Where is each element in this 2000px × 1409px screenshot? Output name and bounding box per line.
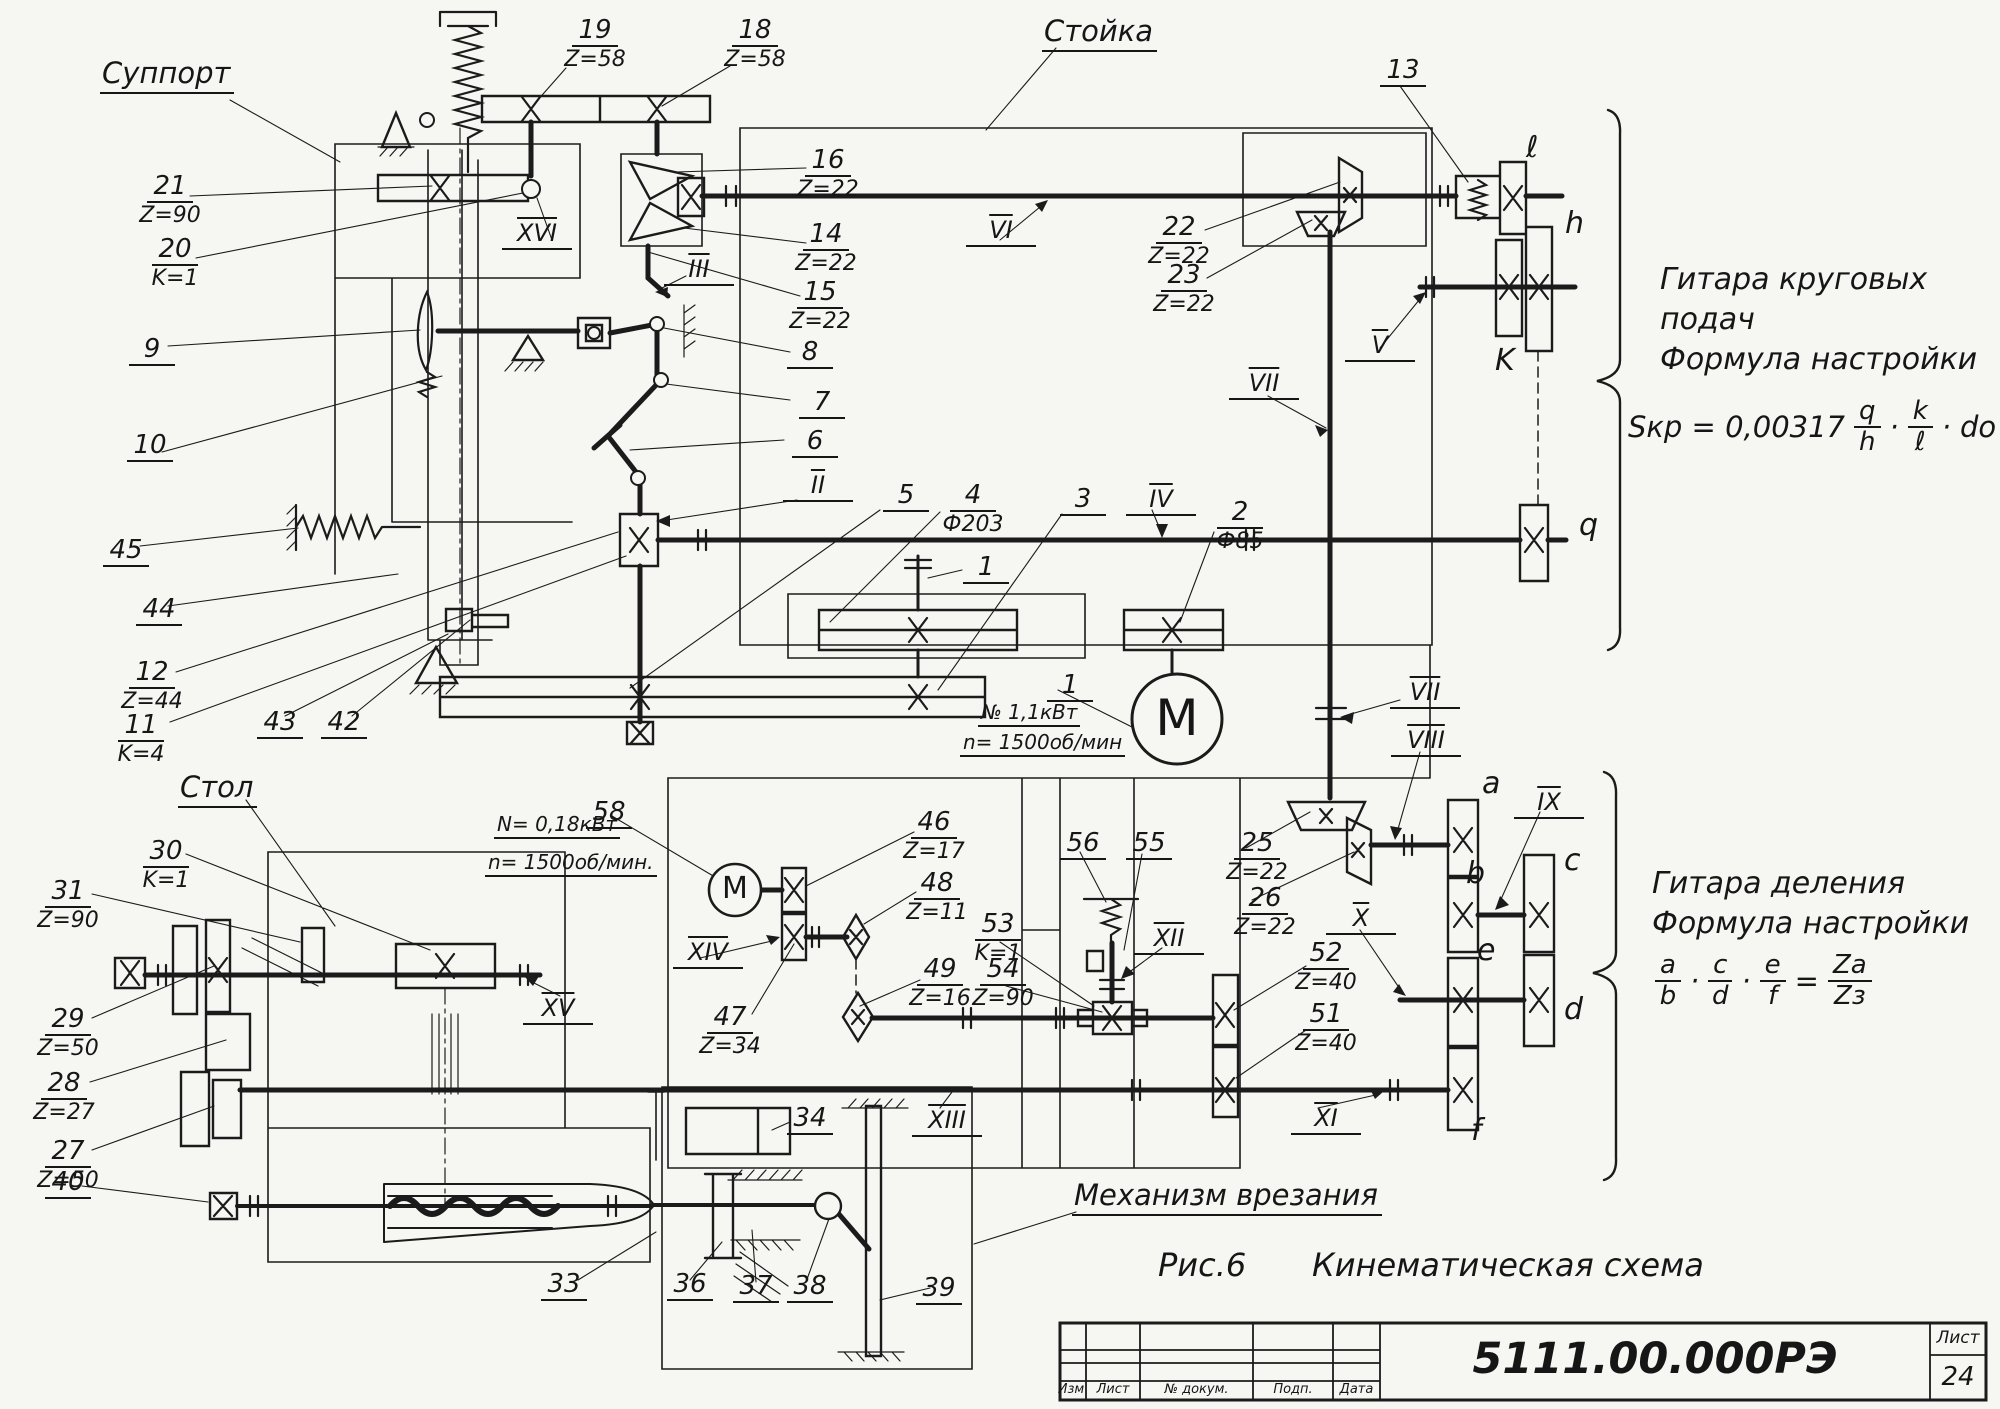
- shaft-label-iii: III: [664, 255, 734, 286]
- note-line: Гитара круговых: [1660, 260, 1977, 300]
- figure-label: Рис.6: [1158, 1246, 1246, 1284]
- circular-feed-note: Гитара круговых подач Формула настройки: [1660, 260, 1977, 381]
- gear-letter-h: h: [1565, 206, 1584, 241]
- callout-14: 14Z=22: [781, 220, 871, 276]
- shaft-label-v: V: [1345, 331, 1415, 362]
- multiply-dot: ·: [1741, 964, 1750, 998]
- title-col-izm: Изм: [1056, 1382, 1086, 1397]
- callout-52: 52Z=40: [1281, 939, 1371, 995]
- note-line: Гитара деления: [1652, 864, 1969, 904]
- callout-46: 46Z=17: [889, 808, 979, 864]
- sheet-label: Лист: [1930, 1328, 1986, 1348]
- callout-23: 23Z=22: [1139, 261, 1229, 317]
- formula-tail: do: [1960, 410, 1996, 444]
- support-title: Суппорт: [100, 56, 234, 94]
- main-motor-symbol: М: [1149, 689, 1205, 747]
- shaft-label-x: X: [1326, 904, 1396, 935]
- callout-13: 13: [1358, 56, 1448, 87]
- callout-54: 54Z=90: [958, 955, 1048, 1011]
- division-formula: ab · cd · ef = ZaZз: [1655, 952, 1872, 1011]
- callout-9: 9: [107, 335, 197, 366]
- title-col-podp: Подп.: [1253, 1382, 1333, 1397]
- curly-braces: [1593, 110, 1620, 1180]
- callout-12: 12Z=44: [107, 658, 197, 714]
- doc-number: 5111.00.000РЭ: [1385, 1334, 1925, 1384]
- callout-33: 33: [519, 1270, 609, 1301]
- note-line: Формула настройки: [1660, 340, 1977, 380]
- gear-letter-b: b: [1466, 856, 1485, 891]
- gear-letter-f: f: [1471, 1113, 1482, 1148]
- stand-title: Стойка: [1042, 14, 1157, 52]
- callout-45: 45: [81, 536, 171, 567]
- callout-21: 21Z=90: [125, 172, 215, 228]
- callout-39: 39: [894, 1274, 984, 1305]
- callout-55: 55: [1104, 829, 1194, 860]
- callout-1-motor: 1: [1025, 671, 1115, 702]
- joint-circle: [420, 113, 434, 127]
- callout-26: 26Z=22: [1220, 884, 1310, 940]
- division-note: Гитара деления Формула настройки: [1652, 864, 1969, 944]
- gear-letter-q: q: [1579, 508, 1598, 543]
- shaft-label-xiv: XIV: [673, 938, 743, 969]
- callout-51: 51Z=40: [1281, 1000, 1371, 1056]
- callout-38: 38: [765, 1272, 855, 1303]
- gear-letter-d: d: [1564, 992, 1583, 1027]
- callout-15: 15Z=22: [775, 278, 865, 334]
- shaft-label-xii: XII: [1134, 924, 1204, 955]
- joint-circle: [631, 471, 645, 485]
- multiply-dot: ·: [1942, 410, 1951, 444]
- shaft-label-ii: II: [783, 471, 853, 502]
- fraction: ab: [1655, 952, 1681, 1011]
- callout-34: 34: [765, 1104, 855, 1135]
- fraction: kℓ: [1908, 398, 1933, 457]
- note-line: подач: [1660, 300, 1977, 340]
- mechanism-title: Механизм врезания: [1072, 1178, 1382, 1216]
- shaft-label-ix: IX: [1514, 788, 1584, 819]
- title-col-data: Дата: [1333, 1382, 1380, 1397]
- callout-3: 3: [1038, 485, 1128, 516]
- shaft-label-xvi: XVI: [502, 219, 572, 250]
- callout-4: 4Ф203: [928, 481, 1018, 537]
- formula-lead: Sкр = 0,00317: [1628, 410, 1845, 444]
- joint-circle: [588, 327, 600, 339]
- callout-10: 10: [105, 431, 195, 462]
- callout-29: 29Z=50: [23, 1005, 113, 1061]
- note-line: Формула настройки: [1652, 904, 1969, 944]
- fraction: ZaZз: [1828, 952, 1872, 1011]
- ball-joint-circle: [815, 1193, 841, 1219]
- fraction: qh: [1854, 398, 1881, 457]
- sheet-number: 24: [1930, 1362, 1986, 1392]
- joint-circle: [522, 180, 540, 198]
- callout-8: 8: [765, 338, 855, 369]
- callout-25: 25Z=22: [1212, 829, 1302, 885]
- fraction: cd: [1708, 952, 1732, 1011]
- equals-sign: =: [1795, 964, 1819, 998]
- aux-motor-speed: n= 1500об/мин.: [485, 850, 657, 877]
- shaft-label-vii-lower: VII: [1390, 678, 1460, 709]
- multiply-dot: ·: [1690, 964, 1699, 998]
- gear-letter-e: e: [1477, 933, 1495, 968]
- shaft-label-xv: XV: [523, 994, 593, 1025]
- table-title: Стол: [178, 770, 257, 808]
- shaft-label-vii-top: VII: [1229, 369, 1299, 400]
- callout-30: 30K=1: [121, 837, 211, 893]
- callout-20: 20K=1: [130, 235, 220, 291]
- callout-2: 2Ф85: [1195, 498, 1285, 554]
- figure-title: Кинематическая схема: [1312, 1246, 1704, 1284]
- joint-circle: [650, 317, 664, 331]
- shaft-label-xi: XI: [1291, 1104, 1361, 1135]
- callout-44: 44: [114, 595, 204, 626]
- gear-letter-a: a: [1482, 766, 1500, 801]
- callout-31: 31Z=90: [23, 877, 113, 933]
- gear-letter-k: K: [1495, 343, 1515, 378]
- springs: [296, 12, 1486, 943]
- gear-letter-c: c: [1564, 843, 1581, 878]
- shaft-label-vi: VI: [966, 216, 1036, 247]
- callout-18: 18Z=58: [710, 16, 800, 72]
- main-motor-power: № 1,1кВт: [978, 700, 1080, 727]
- kinematic-diagram-page: Суппорт Стойка Стол Механизм врезания 19…: [0, 0, 2000, 1409]
- callout-40: 40: [23, 1168, 113, 1199]
- gear-letter-l: ℓ: [1526, 130, 1538, 165]
- circular-feed-formula: Sкр = 0,00317 qh · kℓ · do: [1628, 398, 1996, 457]
- shaft-label-iv: IV: [1126, 485, 1196, 516]
- callout-42: 42: [299, 708, 389, 739]
- multiply-dot: ·: [1890, 410, 1899, 444]
- lever-link: [838, 1213, 869, 1249]
- callout-1-clutch: 1: [941, 553, 1031, 584]
- cam-linkage: [438, 325, 658, 472]
- callout-6: 6: [770, 427, 860, 458]
- worm-gear: [390, 1198, 558, 1214]
- title-col-dokum: № докум.: [1140, 1382, 1253, 1397]
- shaft-label-xiii: XIII: [912, 1106, 982, 1137]
- shaft-label-viii: VIII: [1391, 726, 1461, 757]
- fraction: ef: [1760, 952, 1786, 1011]
- callout-7: 7: [777, 388, 867, 419]
- callout-28: 28Z=27: [19, 1069, 109, 1125]
- aux-motor-power: N= 0,18кВт: [494, 812, 620, 839]
- callout-47: 47Z=34: [685, 1003, 775, 1059]
- aux-motor-symbol: М: [719, 871, 751, 906]
- callout-16: 16Z=22: [783, 146, 873, 202]
- joint-circle: [654, 373, 668, 387]
- callout-11: 11K=4: [96, 711, 186, 767]
- callout-19: 19Z=58: [550, 16, 640, 72]
- title-col-list: Лист: [1086, 1382, 1140, 1397]
- main-motor-speed: n= 1500об/мин: [960, 730, 1125, 757]
